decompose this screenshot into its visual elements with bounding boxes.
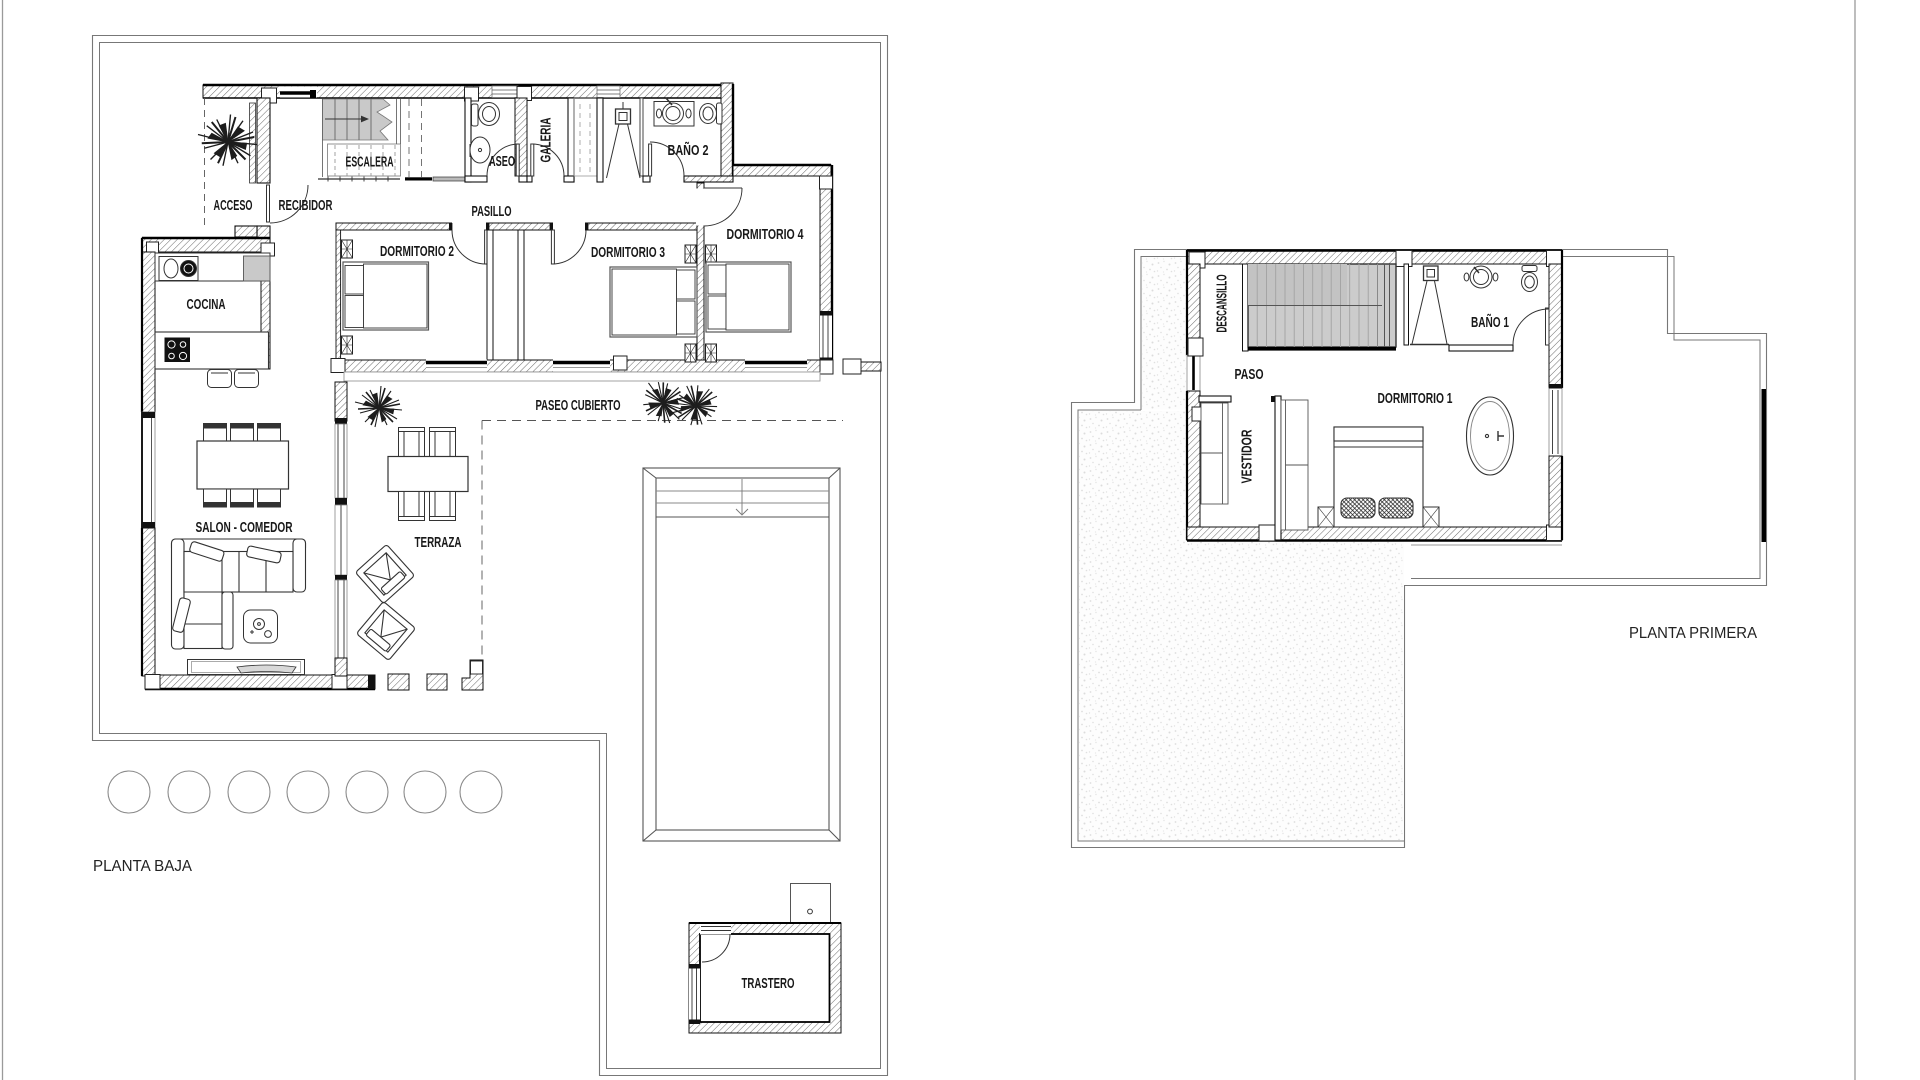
svg-text:VESTIDOR: VESTIDOR bbox=[1240, 429, 1256, 483]
svg-text:COCINA: COCINA bbox=[187, 297, 226, 313]
svg-text:PASO: PASO bbox=[1235, 367, 1264, 383]
svg-text:DORMITORIO 3: DORMITORIO 3 bbox=[591, 245, 665, 261]
svg-text:DORMITORIO 4: DORMITORIO 4 bbox=[727, 227, 804, 243]
svg-text:ESCALERA: ESCALERA bbox=[346, 155, 394, 171]
svg-text:BAÑO 1: BAÑO 1 bbox=[1471, 313, 1509, 331]
svg-text:DESCANSILLO: DESCANSILLO bbox=[1215, 275, 1231, 333]
svg-text:BAÑO 2: BAÑO 2 bbox=[668, 141, 709, 159]
svg-text:PASEO CUBIERTO: PASEO CUBIERTO bbox=[536, 398, 621, 414]
svg-text:TRASTERO: TRASTERO bbox=[742, 976, 795, 992]
svg-text:PASILLO: PASILLO bbox=[472, 204, 512, 220]
svg-text:TERRAZA: TERRAZA bbox=[415, 535, 462, 551]
svg-text:PLANTA PRIMERA: PLANTA PRIMERA bbox=[1629, 625, 1758, 642]
svg-text:PLANTA BAJA: PLANTA BAJA bbox=[93, 858, 193, 875]
svg-text:DORMITORIO 2: DORMITORIO 2 bbox=[380, 244, 454, 260]
svg-text:RECIBIDOR: RECIBIDOR bbox=[279, 198, 333, 214]
svg-text:ASEO: ASEO bbox=[489, 154, 515, 170]
svg-text:SALON - COMEDOR: SALON - COMEDOR bbox=[196, 520, 293, 536]
svg-text:ACCESO: ACCESO bbox=[214, 198, 253, 214]
svg-text:DORMITORIO 1: DORMITORIO 1 bbox=[1378, 391, 1453, 407]
svg-text:GALERIA: GALERIA bbox=[539, 117, 555, 162]
